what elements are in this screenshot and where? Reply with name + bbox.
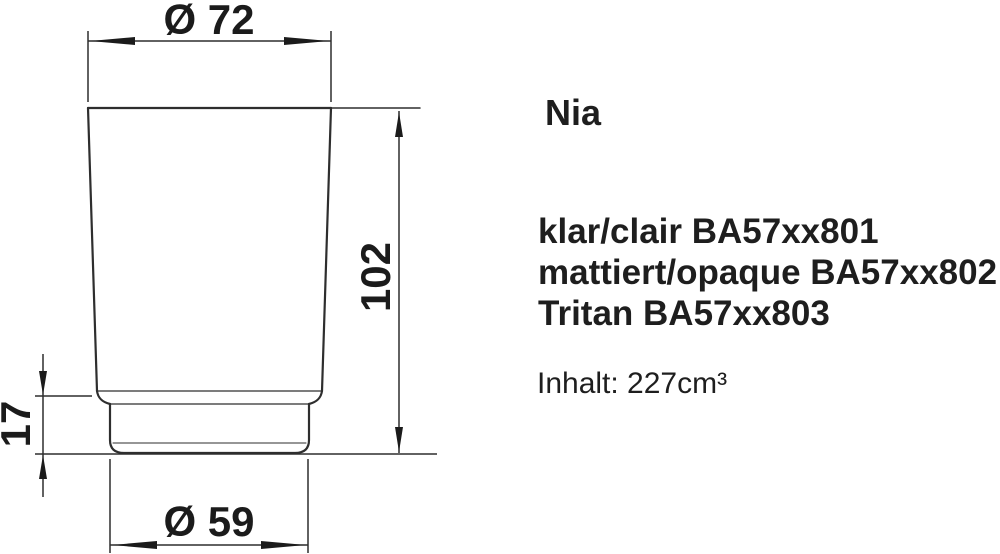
base-height-lower-arrow-icon <box>39 455 47 479</box>
dim-label-top-diameter: Ø 72 <box>163 0 254 43</box>
variant-line-clear: klar/clair BA57xx801 <box>538 211 997 252</box>
cup-left-neck-curve <box>97 391 110 404</box>
product-datasheet-page: Ø 72 102 17 Ø 59 Nia klar/clair BA57xx80… <box>0 0 1000 554</box>
variant-list: klar/clair BA57xx801 mattiert/opaque BA5… <box>538 211 997 334</box>
variant-line-tritan: Tritan BA57xx803 <box>538 293 997 334</box>
product-name: Nia <box>545 92 601 134</box>
base-diameter-left-arrow-icon <box>112 541 157 549</box>
base-height-upper-arrow-icon <box>39 371 47 395</box>
cup-left-wall <box>88 108 97 391</box>
top-diameter-right-arrow-icon <box>284 37 329 45</box>
cup-right-wall <box>322 108 331 391</box>
cup-right-neck-curve <box>309 391 322 404</box>
height-top-arrow-icon <box>395 112 403 137</box>
dim-label-height: 102 <box>352 242 399 312</box>
cup-base-outline <box>110 404 309 453</box>
dim-label-base-diameter: Ø 59 <box>163 498 254 545</box>
dim-label-base-height: 17 <box>0 401 39 448</box>
volume-text: Inhalt: 227cm³ <box>537 367 727 401</box>
base-diameter-right-arrow-icon <box>261 541 306 549</box>
variant-line-opaque: mattiert/opaque BA57xx802 <box>538 252 997 293</box>
top-diameter-left-arrow-icon <box>90 37 135 45</box>
height-bottom-arrow-icon <box>395 427 403 452</box>
